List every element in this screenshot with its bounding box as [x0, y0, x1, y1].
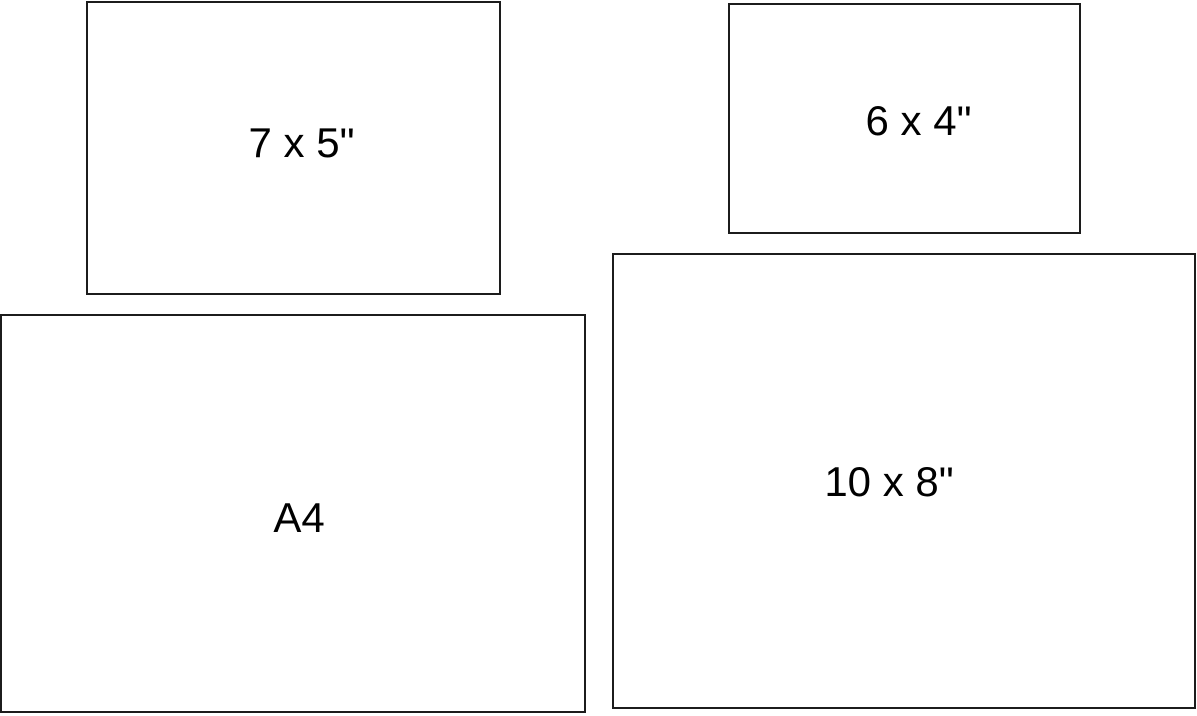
- size-label-a4: A4: [273, 497, 324, 539]
- size-label-10x8: 10 x 8": [824, 461, 953, 503]
- print-size-comparison-diagram: 7 x 5" 6 x 4" A4 10 x 8": [0, 0, 1197, 716]
- size-box-6x4: 6 x 4": [728, 3, 1081, 234]
- size-box-a4: A4: [0, 314, 586, 713]
- size-box-7x5: 7 x 5": [86, 1, 501, 295]
- size-label-6x4: 6 x 4": [866, 100, 972, 142]
- size-label-7x5: 7 x 5": [249, 122, 355, 164]
- size-box-10x8: 10 x 8": [612, 253, 1196, 709]
